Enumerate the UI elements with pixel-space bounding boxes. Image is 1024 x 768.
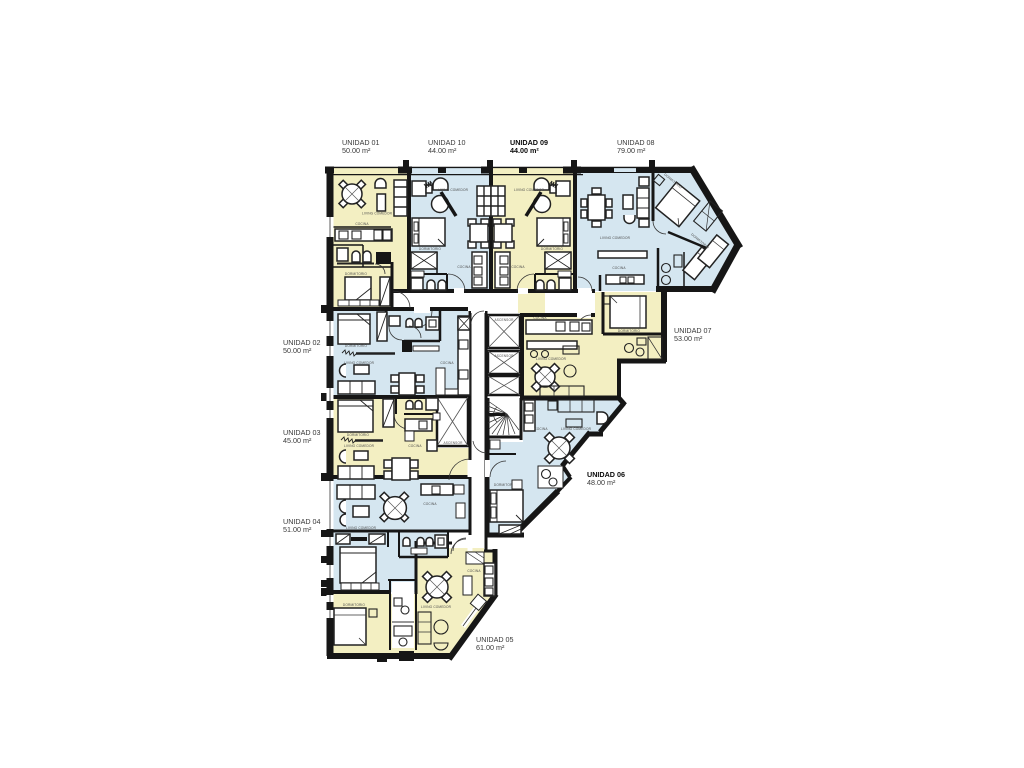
svg-text:44.00 m²: 44.00 m² [428,146,457,155]
svg-text:45.00 m²: 45.00 m² [283,436,312,445]
svg-text:79.00 m²: 79.00 m² [617,146,646,155]
svg-text:50.00 m²: 50.00 m² [342,146,371,155]
svg-text:COCINA: COCINA [612,266,626,270]
svg-text:LIVING COMEDOR: LIVING COMEDOR [362,212,393,216]
svg-text:LIVING COMEDOR: LIVING COMEDOR [600,236,631,240]
svg-text:LIVING COMEDOR: LIVING COMEDOR [344,444,375,448]
svg-text:DORMITORIO: DORMITORIO [347,433,370,437]
svg-text:COCINA: COCINA [511,265,525,269]
svg-text:51.00 m²: 51.00 m² [283,525,312,534]
svg-text:DORMITORIO: DORMITORIO [343,603,366,607]
svg-text:LIVING COMEDOR: LIVING COMEDOR [536,357,567,361]
svg-text:DORMITORIO: DORMITORIO [541,247,564,251]
svg-text:LIVING COMEDOR: LIVING COMEDOR [346,526,377,530]
svg-text:61.00 m²: 61.00 m² [476,643,505,652]
svg-text:COCINA: COCINA [533,316,547,320]
svg-text:DORMITORIO: DORMITORIO [618,329,641,333]
svg-text:COCINA: COCINA [467,569,481,573]
svg-text:COCINA: COCINA [534,427,548,431]
svg-text:ASCENSOR: ASCENSOR [443,441,463,445]
svg-text:53.00 m²: 53.00 m² [674,334,703,343]
svg-text:ASCENSOR: ASCENSOR [494,318,514,322]
svg-text:DORMITORIO: DORMITORIO [345,344,368,348]
svg-text:ASCENSOR: ASCENSOR [494,354,514,358]
svg-text:COCINA: COCINA [440,361,454,365]
svg-text:COCINA: COCINA [457,265,471,269]
svg-text:COCINA: COCINA [423,502,437,506]
svg-text:DORMITORIO: DORMITORIO [345,272,368,276]
svg-text:LIVING COMEDOR: LIVING COMEDOR [561,427,592,431]
svg-text:DORMITORIO: DORMITORIO [419,247,442,251]
svg-text:44.00 m²: 44.00 m² [510,146,539,155]
svg-text:50.00 m²: 50.00 m² [283,346,312,355]
svg-text:48.00 m²: 48.00 m² [587,478,616,487]
svg-text:COCINA: COCINA [408,444,422,448]
svg-text:LIVING COMEDOR: LIVING COMEDOR [421,605,452,609]
svg-text:COCINA: COCINA [355,222,369,226]
